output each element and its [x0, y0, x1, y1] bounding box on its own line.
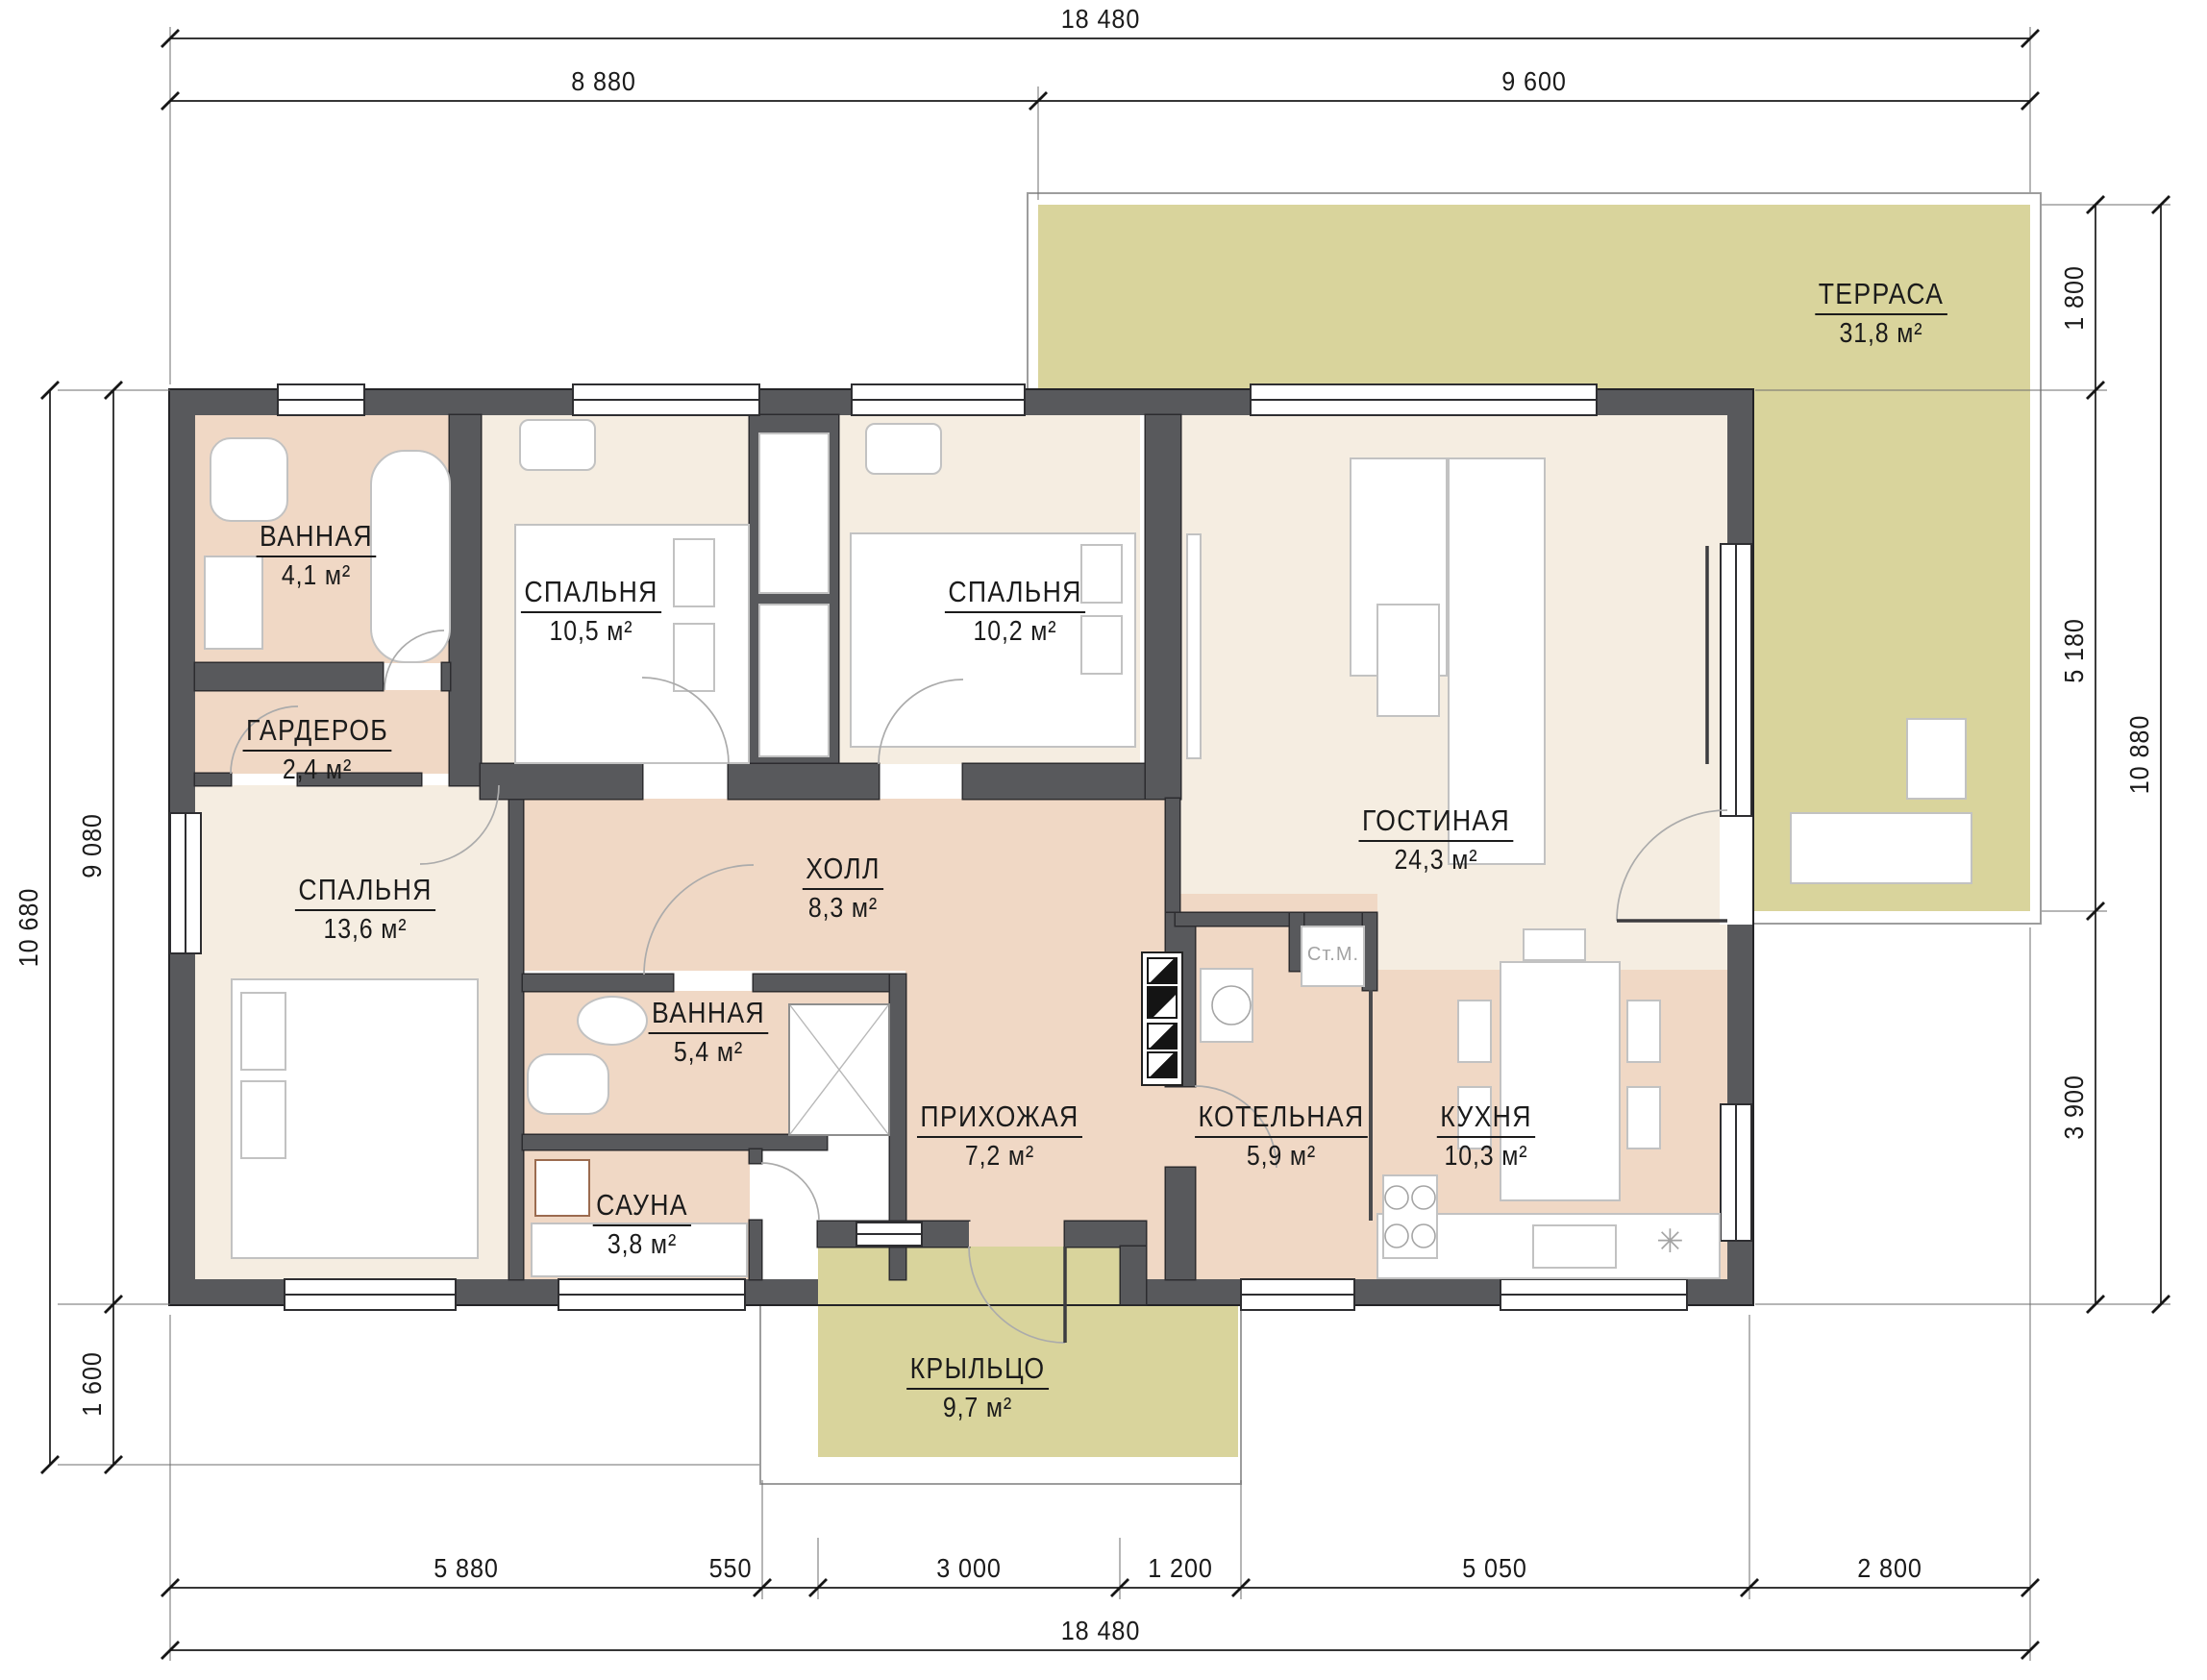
pillow — [1080, 615, 1123, 675]
room-name: ГОСТИНАЯ — [1359, 803, 1514, 842]
dim-bottom-seg-4: 5 050 — [1462, 1553, 1527, 1584]
room-label-kitchen: КУХНЯ 10,3 м² — [1437, 1099, 1535, 1173]
room-area: 24,3 м² — [1359, 845, 1514, 877]
armchair-symbol — [519, 419, 596, 471]
wall-segment — [750, 1221, 761, 1279]
chair-symbol — [1626, 1086, 1661, 1149]
dim-top-seg-1: 9 600 — [1501, 66, 1567, 97]
window-sauna — [558, 1278, 746, 1311]
dim-bottom-seg-2: 3 000 — [936, 1553, 1002, 1584]
boiler-unit-cell — [1147, 957, 1178, 984]
room-area: 10,2 м² — [945, 616, 1085, 648]
dim-bottom-seg-1: 550 — [709, 1553, 753, 1584]
armchair-symbol — [865, 423, 942, 475]
room-name: ПРИХОЖАЯ — [917, 1099, 1082, 1138]
room-label-bathroom-top: ВАННАЯ 4,1 м² — [257, 519, 377, 592]
window-bedroom-2 — [851, 383, 1026, 416]
wall-segment — [195, 774, 231, 785]
sink-symbol — [577, 996, 648, 1046]
sink-symbol — [204, 556, 263, 650]
room-area: 7,2 м² — [917, 1141, 1082, 1173]
dim-right-seg-0: 1 800 — [2059, 265, 2090, 331]
room-name: ВАННАЯ — [649, 996, 769, 1034]
room-label-bedroom-3: СПАЛЬНЯ 13,6 м² — [295, 873, 435, 946]
wall-segment — [481, 764, 642, 799]
room-name: СПАЛЬНЯ — [521, 575, 661, 613]
dim-bottom-seg-5: 2 800 — [1857, 1553, 1922, 1584]
dim-left-seg-0: 9 080 — [77, 813, 108, 878]
dim-left-total: 10 680 — [13, 888, 44, 967]
wall-segment — [195, 663, 383, 690]
room-label-living: ГОСТИНАЯ 24,3 м² — [1359, 803, 1514, 877]
room-area: 3,8 м² — [593, 1229, 692, 1261]
wall-segment — [1166, 1168, 1195, 1279]
boiler-unit-cell — [1147, 1023, 1178, 1050]
room-name: КУХНЯ — [1437, 1099, 1535, 1138]
wall-segment — [1121, 1247, 1146, 1304]
wall-segment — [963, 764, 1161, 799]
room-area: 2,4 м² — [243, 754, 392, 786]
chair-symbol — [1457, 1000, 1492, 1063]
kitchen-sink-symbol — [1532, 1224, 1617, 1269]
wall-segment — [450, 415, 481, 785]
dim-left-seg-1: 1 600 — [77, 1351, 108, 1417]
room-label-boiler: КОТЕЛЬНАЯ 5,9 м² — [1195, 1099, 1368, 1173]
terrace-door-opening — [1720, 817, 1752, 925]
chair-symbol — [1626, 1000, 1661, 1063]
wall-segment — [754, 975, 905, 991]
room-area: 10,3 м² — [1437, 1141, 1535, 1173]
toilet-symbol — [210, 437, 288, 522]
room-label-bedroom-2: СПАЛЬНЯ 10,2 м² — [945, 575, 1085, 648]
room-label-terrace: ТЕРРАСА 31,8 м² — [1815, 277, 1947, 350]
kitchen-partition-line — [1369, 990, 1373, 1221]
room-name: САУНА — [593, 1188, 692, 1226]
dim-right-total: 10 880 — [2124, 715, 2155, 794]
wall-segment — [1363, 913, 1376, 990]
pillow — [240, 1080, 286, 1159]
terrace-furniture — [1790, 812, 1972, 884]
window-terrace-door-glass — [1720, 543, 1752, 817]
boiler-unit-cell — [1147, 1051, 1178, 1078]
dim-top-total: 18 480 — [1061, 4, 1140, 35]
room-name: СПАЛЬНЯ — [295, 873, 435, 911]
room-area: 10,5 м² — [521, 616, 661, 648]
room-label-porch: КРЫЛЬЦО 9,7 м² — [906, 1351, 1049, 1424]
pillow — [673, 538, 715, 607]
room-label-hall: ХОЛЛ 8,3 м² — [803, 852, 883, 925]
room-area: 9,7 м² — [906, 1393, 1049, 1424]
dim-bottom-seg-3: 1 200 — [1148, 1553, 1213, 1584]
dim-right-seg-2: 3 900 — [2059, 1075, 2090, 1140]
pillow — [240, 992, 286, 1071]
wall-segment — [1176, 913, 1365, 926]
tv-unit-symbol — [1186, 533, 1202, 759]
pillow — [673, 623, 715, 692]
entry-sidelight-window — [856, 1222, 923, 1247]
window-bedroom-3-left — [169, 812, 202, 954]
wall-segment — [1065, 1222, 1146, 1247]
porch-recess-floor — [818, 1247, 1121, 1304]
toilet-symbol — [527, 1053, 609, 1115]
wall-segment — [442, 663, 450, 690]
entry-door-opening — [969, 1222, 1065, 1247]
dim-right-seg-1: 5 180 — [2059, 618, 2090, 683]
pillow — [1080, 544, 1123, 604]
room-label-wardrobe: ГАРДЕРОБ 2,4 м² — [243, 713, 392, 786]
room-name: КОТЕЛЬНАЯ — [1195, 1099, 1368, 1138]
room-name: ВАННАЯ — [257, 519, 377, 557]
room-name: КРЫЛЬЦО — [906, 1351, 1049, 1390]
wardrobe-symbol — [758, 432, 830, 594]
dim-bottom-seg-0: 5 880 — [434, 1553, 499, 1584]
window-boiler — [1240, 1278, 1355, 1311]
dim-bottom-total: 18 480 — [1061, 1616, 1140, 1646]
room-name: ТЕРРАСА — [1815, 277, 1947, 315]
chair-symbol — [1523, 928, 1586, 961]
boiler-equipment-symbol — [1200, 968, 1253, 1043]
wall-segment — [509, 774, 523, 1279]
room-name: ХОЛЛ — [803, 852, 883, 890]
shower-tray-symbol — [788, 1003, 890, 1136]
terrace-furniture — [1906, 718, 1967, 800]
window-bathroom-top — [277, 383, 365, 416]
room-area: 5,4 м² — [649, 1037, 769, 1069]
room-name: СПАЛЬНЯ — [945, 575, 1085, 613]
cooktop-symbol — [1382, 1174, 1438, 1259]
wall-segment — [1166, 799, 1179, 913]
wall-segment — [1146, 415, 1180, 799]
window-bedroom-3-bottom — [284, 1278, 457, 1311]
window-kitchen-right — [1720, 1103, 1752, 1242]
room-area: 13,6 м² — [295, 914, 435, 946]
room-area: 4,1 м² — [257, 560, 377, 592]
window-kitchen-bottom — [1500, 1278, 1688, 1311]
wardrobe-symbol — [758, 604, 830, 757]
bathtub-symbol — [370, 450, 451, 663]
room-label-bathroom-mid: ВАННАЯ 5,4 м² — [649, 996, 769, 1069]
room-area: 5,9 м² — [1195, 1141, 1368, 1173]
room-name: ГАРДЕРОБ — [243, 713, 392, 752]
room-label-bedroom-1: СПАЛЬНЯ 10,5 м² — [521, 575, 661, 648]
snowflake-icon: ✳ — [1656, 1223, 1685, 1261]
wall-segment — [750, 1149, 761, 1163]
room-area: 8,3 м² — [803, 893, 883, 925]
wall-segment — [523, 1135, 827, 1149]
boiler-unit-cell — [1147, 986, 1178, 1019]
window-bedroom-1 — [572, 383, 760, 416]
room-area: 31,8 м² — [1815, 318, 1947, 350]
window-living — [1250, 383, 1598, 416]
floor-plan-canvas: ТЕРРАСА 31,8 м² ВАННАЯ 4,1 м² СПАЛЬНЯ 10… — [0, 0, 2207, 1680]
dim-top-seg-0: 8 880 — [571, 66, 636, 97]
room-label-entry: ПРИХОЖАЯ 7,2 м² — [917, 1099, 1082, 1173]
room-label-sauna: САУНА 3,8 м² — [593, 1188, 692, 1261]
wall-segment — [523, 975, 673, 991]
boiler-unit-symbol — [1141, 951, 1183, 1086]
sauna-stove-symbol — [534, 1159, 590, 1217]
coffee-table-symbol — [1376, 604, 1440, 717]
washing-machine-label: Ст.М. — [1307, 944, 1359, 966]
wall-segment — [729, 764, 879, 799]
